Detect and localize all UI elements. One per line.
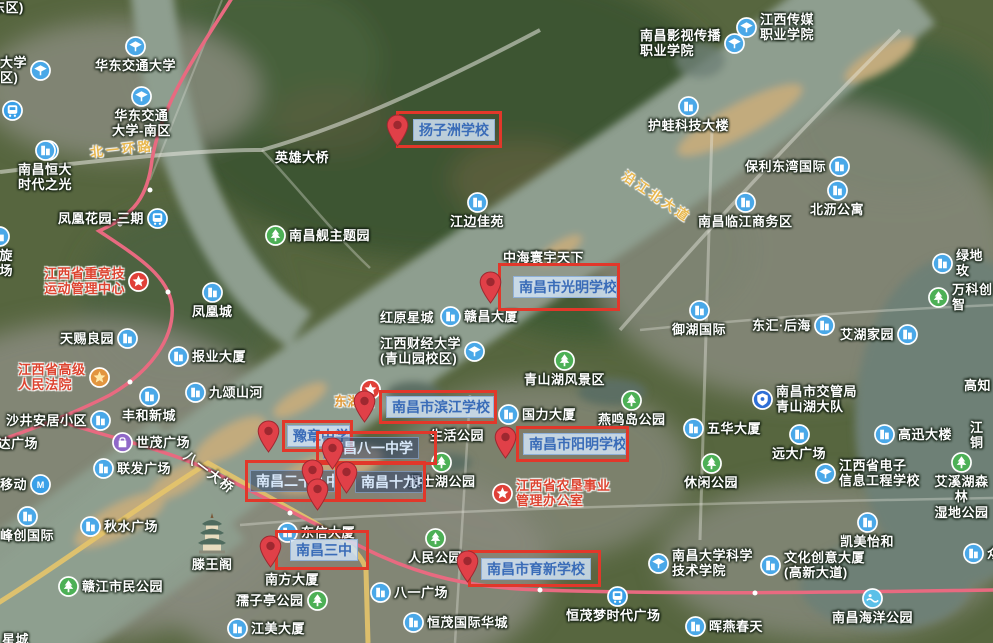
map-poi[interactable]: 恒茂梦时代广场 xyxy=(566,608,661,623)
building-icon xyxy=(498,404,519,425)
school-icon xyxy=(736,17,757,38)
building-icon xyxy=(760,555,781,576)
map-poi[interactable]: 恒茂国际华城 xyxy=(403,612,508,633)
building-icon xyxy=(93,458,114,479)
poi-label: 江西省农垦事业 管理办公室 xyxy=(516,478,611,509)
map-poi[interactable]: 世茂广场 xyxy=(112,432,190,453)
map-poi[interactable]: 青山湖风景区 xyxy=(524,350,605,387)
poi-label: 江铜 xyxy=(970,420,993,451)
poi-label: 高知 xyxy=(964,378,991,393)
poi-label: 万达广场 xyxy=(0,436,38,451)
poi-label: 南昌海洋公园 xyxy=(832,610,913,625)
map-poi[interactable]: 华东交通大学 xyxy=(95,36,176,73)
map-poi[interactable]: 远大广场 xyxy=(772,424,826,461)
metro-icon xyxy=(2,100,23,121)
waterpark-icon xyxy=(862,588,883,609)
location-pin-icon[interactable] xyxy=(456,550,479,583)
poi-label: 江西传媒 职业学院 xyxy=(760,12,814,43)
map-poi[interactable]: 孺子亭公园 xyxy=(236,590,328,611)
mobile-icon: M xyxy=(30,474,51,495)
building-icon xyxy=(139,386,160,407)
school-label[interactable]: 南昌三中 xyxy=(290,539,358,561)
poi-label: 艾溪湖森林 湿地公园 xyxy=(930,474,993,520)
map-poi[interactable]: 九颂山河 xyxy=(185,382,263,403)
map-poi[interactable]: 护蛙科技大楼 xyxy=(648,96,729,133)
metro-icon xyxy=(147,208,168,229)
park-icon xyxy=(928,287,949,308)
poi-label: 星城 xyxy=(2,632,29,643)
school-marker[interactable]: 南昌三中 xyxy=(275,530,369,570)
building-icon xyxy=(829,156,850,177)
location-pin-icon[interactable] xyxy=(259,535,282,568)
school-label[interactable]: 扬子洲学校 xyxy=(413,119,495,141)
poi-label: 众 xyxy=(987,546,993,561)
school-marker[interactable]: 南昌市滨江学校 xyxy=(379,390,497,424)
building-icon xyxy=(90,410,111,431)
poi-label: 凤凰花园-三期 xyxy=(58,211,144,226)
map-poi[interactable]: 南昌大学科学 技术学院 xyxy=(648,548,753,579)
map-poi[interactable]: 秋水广场 xyxy=(80,516,158,537)
poi-label: 凯美怡和 xyxy=(840,534,894,549)
poi-label: 恒茂国际华城 xyxy=(427,615,508,630)
map-poi[interactable]: 艾湖家园 xyxy=(840,324,918,345)
map-poi[interactable]: 大学 区) xyxy=(0,55,51,86)
map-poi[interactable]: 南昌海洋公园 xyxy=(832,588,913,625)
park-icon xyxy=(554,350,575,371)
map-poi[interactable]: 联发广场 xyxy=(93,458,171,479)
map-poi[interactable]: 南昌影视传播 职业学院 xyxy=(640,28,745,59)
school-icon xyxy=(815,463,836,484)
court-icon xyxy=(89,367,110,388)
map-poi[interactable]: 天赐良园 xyxy=(60,328,138,349)
school-label[interactable]: 南昌市滨江学校 xyxy=(386,396,494,418)
map-poi[interactable]: 江西省重竞技 运动管理中心 xyxy=(44,266,149,297)
poi-label: 江西省电子 信息工程学校 xyxy=(839,458,920,489)
building-icon xyxy=(683,418,704,439)
map-poi[interactable]: 凯旋 广场 xyxy=(0,226,13,279)
school-label[interactable]: 南昌市阳明学校 xyxy=(523,433,626,455)
poi-label: 休闲公园 xyxy=(684,475,738,490)
map-poi[interactable]: 江边佳苑 xyxy=(450,192,504,229)
map-poi[interactable]: 赣江市民公园 xyxy=(58,576,163,597)
poi-label: 赣江市民公园 xyxy=(82,579,163,594)
school-icon xyxy=(125,36,146,57)
map-poi[interactable]: 华东交通 大学-南区 xyxy=(112,86,171,139)
police-icon xyxy=(752,389,773,410)
school-label[interactable]: 南昌十九中 xyxy=(355,471,423,493)
map-poi[interactable]: 高知 xyxy=(964,378,991,393)
poi-label: 南昌舰主题园 xyxy=(289,228,370,243)
poi-label: 南昌大学科学 技术学院 xyxy=(672,548,753,579)
map-poi[interactable]: 移动M xyxy=(0,474,51,495)
school-icon xyxy=(464,341,485,362)
map-poi[interactable]: 南昌恒大 时代之光 xyxy=(18,140,72,193)
building-icon xyxy=(857,512,878,533)
map-poi[interactable]: 丰和新城 xyxy=(122,386,176,423)
poi-label: 南昌影视传播 职业学院 xyxy=(640,28,721,59)
poi-label: 高迅大楼 xyxy=(898,427,952,442)
poi-label: 晖燕春天 xyxy=(709,619,763,634)
metro-icon xyxy=(607,586,628,607)
poi-label: 青山湖风景区 xyxy=(524,372,605,387)
poi-label: 文化创意大厦 (高新大道) xyxy=(784,550,865,581)
building-icon xyxy=(168,346,189,367)
poi-label: 恒茂梦时代广场 xyxy=(566,608,661,623)
poi-label: 滕王阁 xyxy=(192,557,233,572)
poi-label: 八一广场 xyxy=(394,585,448,600)
poi-label: 保利东湾国际 xyxy=(745,159,826,174)
map-poi[interactable]: 众 xyxy=(963,543,993,564)
poi-label: 秋水广场 xyxy=(104,519,158,534)
building-icon xyxy=(440,306,461,327)
poi-label: 江西财经大学 (青山园校区) xyxy=(380,336,461,367)
map-poi[interactable]: 凤凰城 xyxy=(192,282,233,319)
map-poi[interactable]: 凤凰花园-三期 xyxy=(58,208,168,229)
map-poi[interactable]: 红原星城 xyxy=(380,310,434,325)
poi-label: 绿地玫 xyxy=(956,248,993,279)
poi-label: 大学 区) xyxy=(0,55,27,86)
poi-label: 沙井安居小区 xyxy=(6,413,87,428)
gov-icon xyxy=(492,483,513,504)
map-poi[interactable]: 报业大厦 xyxy=(168,346,246,367)
school-label[interactable]: 南昌市育新学校 xyxy=(481,558,591,580)
poi-label: 江美大厦 xyxy=(251,621,305,636)
location-pin-icon[interactable] xyxy=(494,426,517,459)
building-icon xyxy=(17,506,38,527)
poi-label: 移动 xyxy=(0,477,27,492)
poi-label: 孺子亭公园 xyxy=(236,593,304,608)
poi-label: 峰创国际 xyxy=(0,528,54,543)
poi-label: 华东交通大学 xyxy=(95,58,176,73)
park-icon xyxy=(425,528,446,549)
location-pin-icon[interactable] xyxy=(306,478,329,511)
building-icon xyxy=(227,618,248,639)
poi-label: 天赐良园 xyxy=(60,331,114,346)
map-poi[interactable]: 休闲公园 xyxy=(684,453,738,490)
poi-label: 北沥公寓 xyxy=(810,202,864,217)
map-poi[interactable] xyxy=(607,586,628,607)
poi-label: 赣昌大厦 xyxy=(464,309,518,324)
map-poi[interactable]: 东区) xyxy=(0,0,24,15)
map-poi[interactable]: 御湖国际 xyxy=(672,300,726,337)
svg-text:M: M xyxy=(37,480,45,490)
park-icon xyxy=(58,576,79,597)
building-icon xyxy=(963,543,984,564)
poi-label: 南昌市交管局 青山湖大队 xyxy=(776,384,857,415)
poi-label: 英雄大桥 xyxy=(275,150,329,165)
map-poi[interactable]: 五华大厦 xyxy=(683,418,761,439)
map-poi[interactable]: 东汇·后海 xyxy=(752,315,835,336)
map-poi[interactable]: 南昌舰主题园 xyxy=(265,225,370,246)
building-icon xyxy=(370,582,391,603)
map-poi[interactable] xyxy=(2,100,23,121)
park-icon xyxy=(307,590,328,611)
map-poi[interactable]: 峰创国际 xyxy=(0,506,54,543)
map-poi[interactable]: 高迅大楼 xyxy=(874,424,952,445)
map-poi[interactable]: 北沥公寓 xyxy=(810,180,864,217)
poi-label: 凯旋 广场 xyxy=(0,248,13,279)
map-poi[interactable]: 万达广场 xyxy=(0,436,38,451)
shopping-icon xyxy=(112,432,133,453)
map-poi[interactable]: 江美大厦 xyxy=(227,618,305,639)
poi-label: 人民公园 xyxy=(408,550,462,565)
poi-label: 护蛙科技大楼 xyxy=(648,118,729,133)
location-pin-icon[interactable] xyxy=(353,390,376,423)
poi-label: 华东交通 大学-南区 xyxy=(112,108,171,139)
map-poi[interactable]: 江西省电子 信息工程学校 xyxy=(815,458,920,489)
pagoda-icon xyxy=(194,512,230,556)
school-marker[interactable]: 南昌市育新学校 xyxy=(468,550,601,587)
poi-label: 万科创智 xyxy=(952,282,993,313)
poi-label: 艾湖家园 xyxy=(840,327,894,342)
map-poi[interactable]: 南昌临江商务区 xyxy=(698,192,793,229)
poi-label: 红原星城 xyxy=(380,310,434,325)
map-poi[interactable]: 南方大厦 xyxy=(265,572,319,587)
building-icon xyxy=(897,324,918,345)
map-poi[interactable]: 艾溪湖森林 湿地公园 xyxy=(930,452,993,520)
building-icon xyxy=(735,192,756,213)
building-icon xyxy=(117,328,138,349)
poi-label: 生活公园 xyxy=(430,428,484,443)
school-icon xyxy=(648,553,669,574)
building-icon xyxy=(689,300,710,321)
poi-label: 丰和新城 xyxy=(122,408,176,423)
gov-icon xyxy=(128,271,149,292)
map-poi[interactable]: 江西省高级 人民法院 xyxy=(18,362,110,393)
poi-label: 九颂山河 xyxy=(209,385,263,400)
building-icon xyxy=(185,382,206,403)
map-poi[interactable]: 滕王阁 xyxy=(192,512,233,572)
building-icon xyxy=(874,424,895,445)
map-poi[interactable]: 国力大厦 xyxy=(498,404,576,425)
poi-label: 南昌恒大 时代之光 xyxy=(18,162,72,193)
building-icon xyxy=(467,192,488,213)
location-pin-icon[interactable] xyxy=(386,114,409,147)
location-pin-icon[interactable] xyxy=(335,461,358,494)
poi-label: 江边佳苑 xyxy=(450,214,504,229)
school-label[interactable]: 南昌市光明学校 xyxy=(513,276,617,298)
map-poi[interactable]: 江西传媒 职业学院 xyxy=(736,12,814,43)
poi-label: 国力大厦 xyxy=(522,407,576,422)
building-icon xyxy=(932,253,953,274)
poi-label: 东汇·后海 xyxy=(752,318,811,333)
poi-label: 凤凰城 xyxy=(192,304,233,319)
park-icon xyxy=(265,225,286,246)
poi-label: 南方大厦 xyxy=(265,572,319,587)
school-icon xyxy=(131,86,152,107)
map-poi[interactable]: 绿地玫 xyxy=(932,248,993,279)
poi-label: 五华大厦 xyxy=(707,421,761,436)
poi-label: 报业大厦 xyxy=(192,349,246,364)
building-icon xyxy=(80,516,101,537)
poi-label: 南昌临江商务区 xyxy=(698,214,793,229)
poi-label: 联发广场 xyxy=(117,461,171,476)
map-poi[interactable]: 万科创智 xyxy=(928,282,993,313)
school-marker[interactable]: 南昌市阳明学校 xyxy=(516,426,629,462)
building-icon xyxy=(814,315,835,336)
map-poi[interactable]: 江西财经大学 (青山园校区) xyxy=(380,336,485,367)
map-poi[interactable]: 英雄大桥 xyxy=(275,150,329,165)
map-poi[interactable]: 晖燕春天 xyxy=(685,616,763,637)
building-icon xyxy=(789,424,810,445)
park-icon xyxy=(621,390,642,411)
location-pin-icon[interactable] xyxy=(479,271,502,304)
poi-label: 御湖国际 xyxy=(672,322,726,337)
map-poi[interactable]: 沙井安居小区 xyxy=(6,410,111,431)
map-poi[interactable]: 星城 xyxy=(2,632,29,643)
building-icon xyxy=(678,96,699,117)
school-marker[interactable]: 扬子洲学校 xyxy=(396,111,502,148)
map-poi[interactable]: 保利东湾国际 xyxy=(745,156,850,177)
map-poi[interactable]: 江西省农垦事业 管理办公室 xyxy=(492,478,611,509)
location-pin-icon[interactable] xyxy=(257,420,280,453)
building-icon xyxy=(202,282,223,303)
map-poi[interactable]: 江铜 xyxy=(970,420,993,451)
school-marker[interactable]: 南昌市光明学校 xyxy=(498,263,620,311)
building-icon xyxy=(827,180,848,201)
poi-label: 世茂广场 xyxy=(136,435,190,450)
poi-label: 江西省重竞技 运动管理中心 xyxy=(44,266,125,297)
poi-label: 东区) xyxy=(0,0,24,15)
park-icon xyxy=(951,452,972,473)
map-poi[interactable]: 人民公园 xyxy=(408,528,462,565)
poi-label: 江西省高级 人民法院 xyxy=(18,362,86,393)
school-icon xyxy=(30,60,51,81)
building-icon xyxy=(35,140,56,161)
park-icon xyxy=(701,453,722,474)
building-icon xyxy=(403,612,424,633)
building-icon xyxy=(685,616,706,637)
map-poi[interactable]: 八一广场 xyxy=(370,582,448,603)
map-poi[interactable]: 文化创意大厦 (高新大道) xyxy=(760,550,865,581)
map-canvas[interactable]: 华东交通大学华东交通 大学-南区大学 区)东区)南昌影视传播 职业学院江西传媒 … xyxy=(0,0,993,643)
map-poi[interactable]: 凯美怡和 xyxy=(840,512,894,549)
building-icon xyxy=(0,226,10,247)
map-poi[interactable]: 生活公园 xyxy=(430,428,484,443)
map-poi[interactable]: 南昌市交管局 青山湖大队 xyxy=(752,384,857,415)
map-poi[interactable]: 燕鸣岛公园 xyxy=(598,390,666,427)
